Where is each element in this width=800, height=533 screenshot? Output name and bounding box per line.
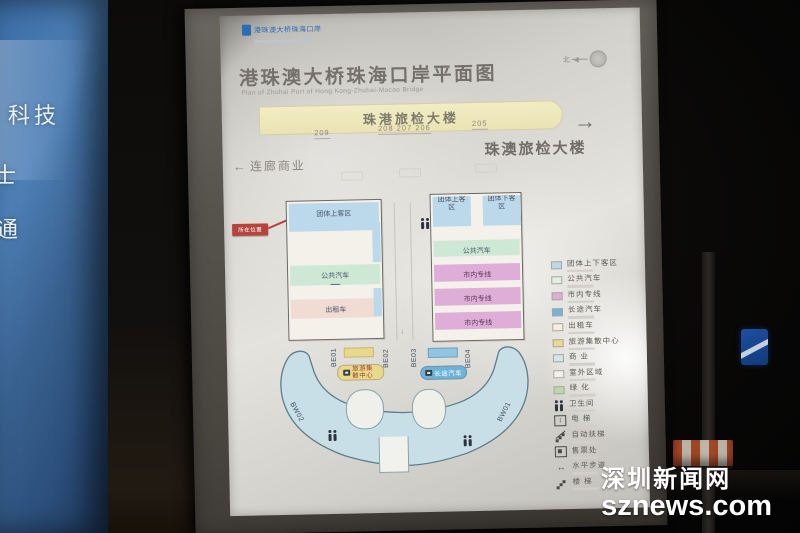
coach-booth: 长途汽车: [420, 365, 467, 380]
legend-item: 团体上下客区: [551, 256, 618, 273]
group-boarding-zone: 团体上客区: [289, 202, 380, 232]
city-line-zone: 市内专线: [434, 287, 520, 306]
signboard-frame: 港珠澳大桥珠海口岸 北 港珠澳大桥珠海口岸平面图 Plan of Zhuhai …: [185, 0, 668, 533]
legend-label: 电 梯: [571, 413, 597, 428]
port-logo-subtext: [254, 39, 312, 42]
gate-label: BE02: [383, 349, 390, 368]
zhuhai-hk-terminal-bar: 珠港旅检大楼 209 208 207 206 205: [259, 100, 564, 135]
gate-number: 209: [314, 128, 330, 139]
legend-label: 市内专线: [567, 288, 601, 303]
legend-swatch: [552, 323, 563, 331]
restroom-icon: [327, 430, 337, 441]
taxi-icon: [331, 318, 341, 319]
legend-label: 自动扶梯: [571, 428, 605, 443]
left-arrow-icon: ←: [233, 159, 248, 174]
legend-item: 卫生间: [554, 396, 621, 413]
tourist-center-booth: 旅游集散中心: [337, 364, 384, 381]
glass-facade-panel: 科技 士 通: [0, 0, 108, 533]
night-photo-scene: 科技 士 通 港珠澳大桥珠海口岸 北 港珠澳大桥珠海口岸平面图 Plan of …: [0, 0, 800, 533]
legend-label: 室外区域: [569, 366, 603, 381]
legend-label: 公共汽车: [567, 272, 601, 287]
platform-strip: [372, 222, 381, 262]
port-logo-icon: [242, 25, 251, 36]
legend-label: 旅游集散中心: [568, 334, 619, 350]
moving-walkway-icon: ↔: [555, 462, 567, 473]
legend-item: 自动扶梯: [554, 427, 621, 444]
legend-item: ↕ 电 梯: [554, 412, 621, 429]
legend-label: 出租车: [568, 319, 594, 334]
ticket-counter-block: [344, 347, 374, 358]
coach-label: 长途汽车: [434, 367, 462, 378]
platform-strip: [373, 288, 382, 316]
facade-text-line: 通: [0, 212, 22, 244]
port-logo-text: 港珠澳大桥珠海口岸: [254, 26, 322, 34]
parking-stand: [399, 168, 421, 177]
legend-swatch: [554, 386, 565, 394]
public-bus-zone: 公共汽车: [290, 264, 380, 286]
legend-swatch: [553, 370, 564, 378]
legend-item: 商 业: [553, 350, 620, 367]
city-line-label: 市内专线: [464, 296, 492, 305]
watermark-url: sznews.com: [601, 492, 772, 521]
road-sign: [741, 329, 768, 365]
bus-icon: [330, 284, 340, 286]
legend-item: 绿 化: [553, 381, 620, 398]
ticket-office-icon: [555, 447, 567, 458]
gate-number: 208 207 206: [378, 123, 431, 135]
corridor-line: [410, 202, 414, 340]
north-label: 北: [563, 54, 570, 64]
parking-stand: [475, 163, 497, 172]
gate-label: BE01: [331, 348, 338, 367]
corridor-commerce-text: 连廊商业: [250, 158, 306, 173]
city-line-label: 市内专线: [463, 272, 491, 281]
coach-counter-block: [428, 347, 458, 358]
legend-label: 售票处: [572, 444, 598, 459]
legend-label: 绿 化: [569, 382, 595, 397]
city-line-zone: 市内专线: [435, 311, 521, 330]
legend-swatch: [552, 292, 563, 300]
restroom-icon: [554, 400, 564, 411]
escalator-icon: [554, 431, 566, 442]
legend-item: 长途汽车: [552, 303, 619, 320]
elevator-icon: ↕: [554, 415, 566, 426]
ticket-window-icon: [343, 370, 350, 376]
legend-item: 旅游集散中心: [552, 334, 619, 351]
compass-dial-icon: [590, 50, 607, 67]
north-arrow-icon: [572, 59, 588, 60]
page-title: 港珠澳大桥珠海口岸平面图: [239, 58, 498, 90]
city-line-label: 市内专线: [464, 320, 492, 329]
news-watermark: 深圳新闻网 sznews.com: [601, 468, 772, 521]
you-are-here-badge: 所在位置: [232, 223, 268, 236]
restroom-icon: [463, 435, 473, 446]
restroom-icon: [420, 218, 430, 229]
corridor-commerce-label: ←连廊商业: [233, 156, 306, 175]
legend-swatch: [553, 339, 564, 347]
gate-label: BE03: [411, 348, 418, 367]
group-boarding-zone: 团体上客区: [433, 196, 472, 227]
ticket-window-icon: [425, 370, 432, 376]
group-boarding-label: 团体上客区: [313, 210, 355, 219]
down-arrow-icon: ↓: [400, 326, 404, 335]
legend-label: 卫生间: [569, 397, 595, 412]
stairs-icon: [555, 478, 567, 489]
public-bus-label: 公共汽车: [321, 273, 349, 282]
gate-label: BE04: [465, 349, 472, 368]
legend-swatch: [552, 308, 563, 316]
legend-swatch: [551, 261, 562, 269]
city-line-zone: 市内专线: [434, 263, 520, 282]
corridor-line: [394, 203, 398, 341]
tourist-center-label: 旅游集散中心: [352, 365, 378, 380]
legend-label: 楼 梯: [572, 475, 598, 490]
legend-item: 出租车: [552, 318, 619, 335]
legend-label: 长途汽车: [568, 304, 602, 319]
legend-item: 售票处: [555, 443, 622, 460]
group-alighting-zone: 团体下客区: [483, 195, 522, 226]
map-legend: 团体上下客区 公共汽车 市内专线 长途汽车 出租车: [551, 256, 623, 491]
port-map-poster: 港珠澳大桥珠海口岸 北 港珠澳大桥珠海口岸平面图 Plan of Zhuhai …: [220, 7, 650, 516]
gate-number: 205: [472, 119, 488, 130]
parking-stand: [341, 171, 363, 180]
legend-swatch: [553, 354, 564, 362]
taxi-label: 出租车: [325, 307, 346, 315]
north-compass: 北: [563, 50, 607, 68]
right-platform-building: 团体上客区 团体下客区 公共汽车 市内专线 市内专线 市内专线: [429, 192, 524, 342]
legend-item: 市内专线: [551, 287, 618, 304]
traffic-barrier: [673, 440, 733, 466]
left-platform-building: 团体上客区 公共汽车 出租车: [286, 199, 385, 341]
group-alighting-label: 团体下客区: [487, 195, 517, 212]
dark-pillar: [108, 0, 194, 533]
legend-item: 公共汽车: [551, 272, 618, 289]
legend-label: 团体上下客区: [567, 257, 618, 273]
watermark-chinese: 深圳新闻网: [601, 468, 772, 492]
public-bus-label: 公共汽车: [463, 248, 491, 257]
facade-text-line: 科技: [8, 98, 60, 130]
legend-item: 室外区域: [553, 365, 620, 382]
taxi-zone: 出租车: [291, 298, 381, 319]
legend-label: 商 业: [569, 351, 595, 366]
facade-text-line: 士: [0, 158, 20, 190]
poster-logo: 港珠澳大桥珠海口岸: [242, 20, 322, 43]
group-boarding-label: 团体上客区: [437, 196, 467, 213]
right-arrow-icon: →: [574, 108, 597, 134]
plaza-island: [346, 389, 385, 430]
public-bus-zone: 公共汽车: [433, 239, 519, 257]
center-walkway: [379, 436, 410, 473]
plaza-island: [412, 389, 447, 430]
zhuhai-macao-terminal-label: 珠澳旅检大楼: [484, 137, 586, 160]
legend-swatch: [551, 277, 562, 285]
